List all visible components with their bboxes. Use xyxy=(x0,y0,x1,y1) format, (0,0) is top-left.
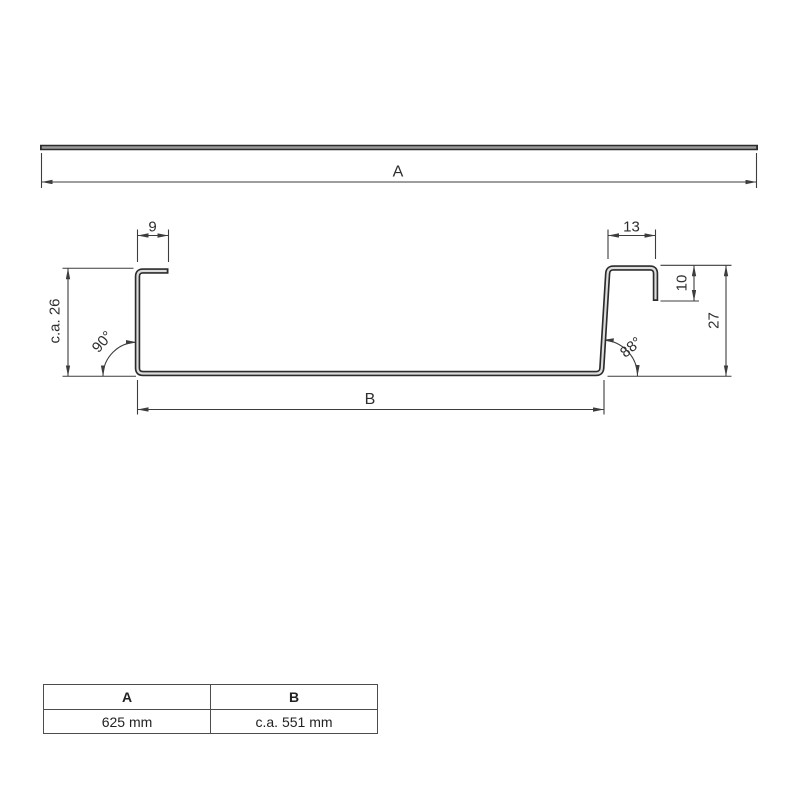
angle-90-label: 90° xyxy=(89,328,117,356)
profile-outline xyxy=(138,268,656,374)
table-value-b: c.a. 551 mm xyxy=(211,710,378,734)
dimension-table-grid: A B 625 mm c.a. 551 mm xyxy=(43,684,378,734)
dim-13-label: 13 xyxy=(623,219,640,236)
dim-27-label: 27 xyxy=(706,312,723,329)
table-header-row: A B xyxy=(44,685,378,710)
dim-b-label: B xyxy=(365,391,376,408)
dim-26-label: c.a. 26 xyxy=(47,298,64,343)
dimension-table: A B 625 mm c.a. 551 mm xyxy=(43,684,378,734)
profile-drawing-svg: A 9 13 10 27 c.a. 26 B 90° 88° xyxy=(0,0,800,800)
table-header-a: A xyxy=(44,685,211,710)
profile-cross-section xyxy=(138,268,656,374)
table-value-row: 625 mm c.a. 551 mm xyxy=(44,710,378,734)
technical-drawing-page: A 9 13 10 27 c.a. 26 B 90° 88° A B 625 m… xyxy=(0,0,800,800)
dim-10-label: 10 xyxy=(674,275,691,292)
table-value-a: 625 mm xyxy=(44,710,211,734)
profile-core xyxy=(138,268,656,374)
angle-88-label: 88° xyxy=(617,334,645,362)
table-header-b: B xyxy=(211,685,378,710)
dim-a-label: A xyxy=(393,164,404,181)
dim-9-label: 9 xyxy=(148,219,156,236)
